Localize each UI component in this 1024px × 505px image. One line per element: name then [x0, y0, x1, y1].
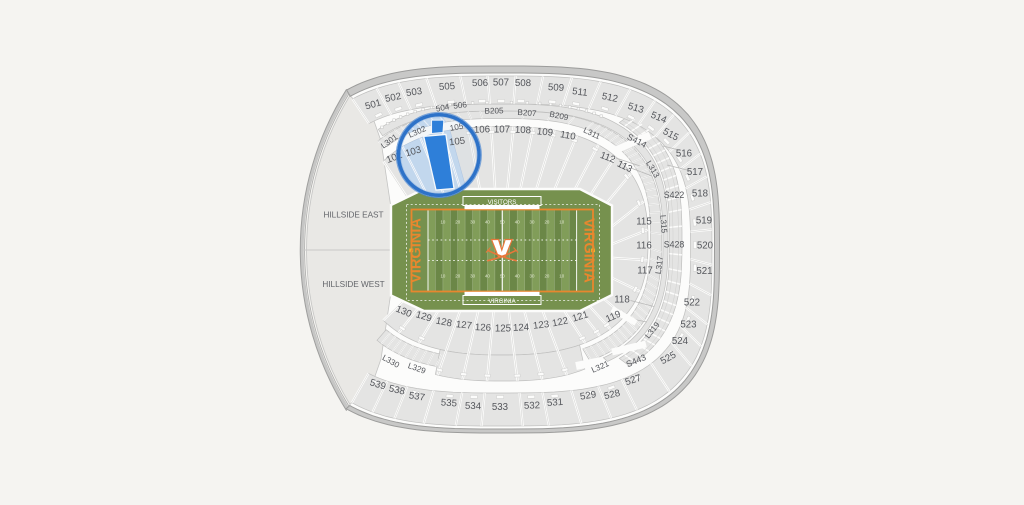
svg-text:108: 108: [515, 125, 532, 137]
svg-text:30: 30: [470, 220, 475, 225]
svg-text:VIRGINIA: VIRGINIA: [409, 218, 425, 283]
svg-text:531: 531: [547, 397, 564, 409]
svg-text:532: 532: [524, 400, 540, 411]
svg-text:124: 124: [513, 322, 530, 334]
svg-text:VISITORS: VISITORS: [488, 199, 517, 206]
svg-text:115: 115: [636, 217, 651, 228]
svg-text:518: 518: [692, 189, 708, 200]
svg-text:50: 50: [500, 274, 505, 279]
svg-text:40: 40: [485, 274, 490, 279]
svg-text:20: 20: [455, 220, 460, 225]
svg-text:520: 520: [697, 241, 714, 252]
svg-text:524: 524: [672, 336, 689, 347]
svg-text:30: 30: [470, 274, 475, 279]
svg-text:127: 127: [455, 319, 472, 332]
svg-text:10: 10: [559, 220, 564, 225]
svg-text:20: 20: [455, 274, 460, 279]
svg-text:535: 535: [440, 397, 457, 409]
svg-text:VIRGINIA: VIRGINIA: [488, 298, 516, 305]
svg-text:516: 516: [676, 149, 692, 160]
svg-text:10: 10: [440, 274, 445, 279]
svg-text:509: 509: [548, 82, 565, 94]
svg-text:L315: L315: [658, 215, 668, 234]
svg-text:118: 118: [614, 295, 629, 306]
svg-text:10: 10: [559, 274, 564, 279]
svg-text:107: 107: [494, 125, 510, 136]
svg-text:117: 117: [637, 266, 652, 277]
svg-text:126: 126: [475, 322, 492, 334]
svg-text:125: 125: [495, 324, 511, 335]
svg-text:517: 517: [687, 167, 703, 178]
svg-text:521: 521: [696, 266, 712, 277]
svg-text:105: 105: [448, 136, 465, 149]
svg-text:522: 522: [684, 298, 700, 309]
svg-text:123: 123: [532, 319, 549, 332]
svg-text:B207: B207: [517, 108, 537, 118]
svg-text:VIRGINIA: VIRGINIA: [581, 218, 597, 283]
svg-text:S428: S428: [664, 240, 685, 250]
svg-text:511: 511: [572, 86, 589, 99]
svg-text:40: 40: [515, 274, 520, 279]
svg-text:40: 40: [485, 220, 490, 225]
svg-text:534: 534: [465, 401, 482, 412]
svg-text:50: 50: [500, 220, 505, 225]
svg-text:HILLSIDE WEST: HILLSIDE WEST: [322, 280, 384, 289]
svg-text:507: 507: [493, 78, 509, 89]
svg-text:116: 116: [636, 241, 651, 252]
svg-text:503: 503: [405, 86, 423, 99]
svg-text:505: 505: [439, 81, 456, 93]
svg-text:30: 30: [530, 220, 535, 225]
svg-text:519: 519: [696, 216, 712, 227]
svg-text:533: 533: [492, 402, 508, 413]
svg-text:506: 506: [472, 78, 488, 89]
svg-text:20: 20: [544, 274, 549, 279]
svg-text:10: 10: [440, 220, 445, 225]
svg-text:B205: B205: [484, 106, 504, 115]
svg-text:30: 30: [530, 274, 535, 279]
svg-text:508: 508: [515, 78, 531, 89]
svg-text:HILLSIDE EAST: HILLSIDE EAST: [323, 211, 383, 220]
svg-text:506: 506: [453, 100, 468, 111]
svg-text:40: 40: [515, 220, 520, 225]
svg-text:109: 109: [536, 126, 553, 138]
svg-text:S422: S422: [664, 190, 685, 200]
svg-text:523: 523: [680, 320, 696, 331]
svg-text:20: 20: [544, 220, 549, 225]
